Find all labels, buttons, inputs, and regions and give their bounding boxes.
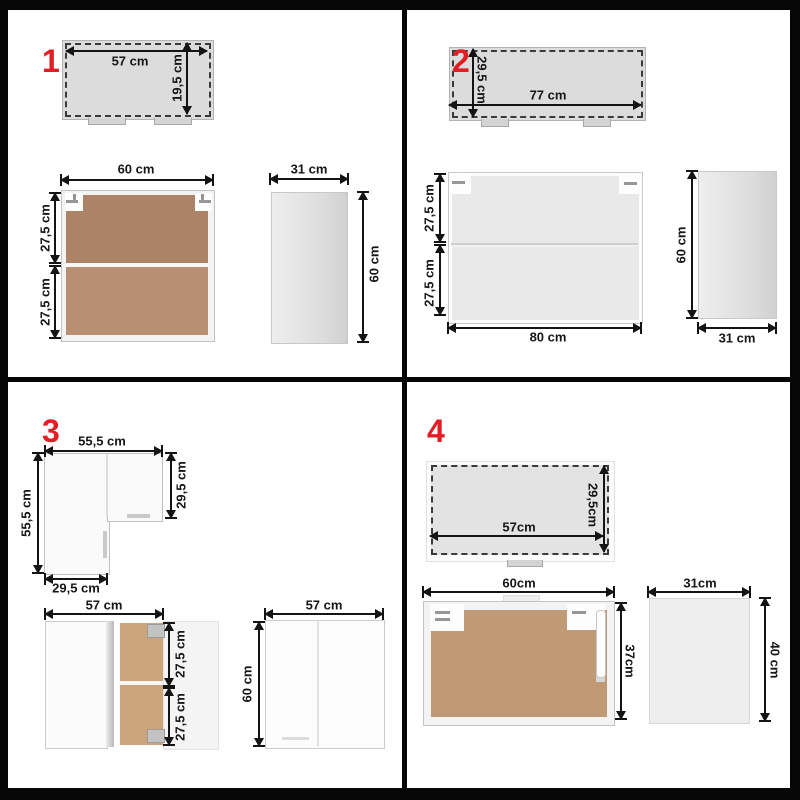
door-seam <box>317 621 319 746</box>
end-tick <box>163 744 175 746</box>
corner-cabinet-right-arm <box>107 453 163 522</box>
end-tick <box>49 265 61 267</box>
door-handle <box>282 737 309 740</box>
end-tick <box>422 586 424 598</box>
dim-line-side-width <box>648 591 750 593</box>
end-tick <box>434 314 446 316</box>
panel-2-number: 2 <box>452 45 470 77</box>
dim-line-width <box>430 535 603 537</box>
end-tick <box>640 322 642 334</box>
hinge-hardware <box>73 194 76 202</box>
end-tick <box>253 621 265 623</box>
dim-line-upper-height <box>54 193 56 263</box>
cabinet-foot <box>507 560 543 567</box>
dim-label-open-upper-height: 27,5 cm <box>174 630 187 678</box>
end-tick <box>615 602 627 604</box>
dim-line-lower-height <box>54 266 56 338</box>
open-door-panel <box>45 621 108 749</box>
end-tick <box>269 173 271 185</box>
glass-shelf-highlight <box>451 245 638 247</box>
end-tick <box>434 173 446 175</box>
dim-label-closed-width: 57 cm <box>306 599 343 612</box>
end-tick <box>60 174 62 186</box>
end-tick <box>613 586 615 598</box>
end-tick <box>49 192 61 194</box>
dim-line-lower-height <box>439 245 441 315</box>
end-tick <box>165 452 177 454</box>
panel-4-side-view-drawing <box>649 598 750 724</box>
cabinet-interior-lower <box>66 267 208 335</box>
hinge-icon <box>147 729 165 743</box>
dim-label-front-width: 60 cm <box>118 163 155 176</box>
end-tick <box>434 244 446 246</box>
end-tick <box>686 317 698 319</box>
door-seam <box>106 454 108 518</box>
dim-line-depth <box>603 466 605 552</box>
lift-piston-icon <box>596 610 606 678</box>
dim-label-corner-bottom-width: 29,5 cm <box>52 582 100 595</box>
hinge-hardware <box>435 618 450 621</box>
dim-label-side-width: 31 cm <box>719 332 756 345</box>
open-door-edge <box>106 621 114 747</box>
door-handle <box>127 514 150 518</box>
dim-line-open-lower-height <box>168 688 170 745</box>
cabinet-foot <box>154 118 192 125</box>
end-tick <box>686 170 698 172</box>
panel-3-number: 3 <box>42 415 60 447</box>
end-tick <box>32 572 44 574</box>
door-handle <box>103 531 107 558</box>
cabinet-shelf <box>66 263 208 267</box>
hinge-hardware <box>572 611 586 614</box>
end-tick <box>382 608 384 620</box>
end-tick <box>264 608 266 620</box>
end-tick <box>357 341 369 343</box>
panel-1-number: 1 <box>42 45 60 77</box>
dim-label-front-height: 37cm <box>624 644 637 677</box>
end-tick <box>749 586 751 598</box>
dim-label-front-width: 60cm <box>502 577 535 590</box>
end-tick <box>161 445 163 457</box>
end-tick <box>615 718 627 720</box>
dim-label-closed-height: 60 cm <box>241 666 254 703</box>
panel-4-top-view-drawing <box>431 465 609 555</box>
dim-label-open-width: 57 cm <box>86 599 123 612</box>
frame-bottom <box>0 788 800 800</box>
end-tick <box>163 687 175 689</box>
dim-line-open-width <box>45 613 163 615</box>
dim-line-side-height <box>691 171 693 318</box>
hinge-hardware <box>435 611 450 614</box>
end-tick <box>357 191 369 193</box>
dim-label-width: 57cm <box>502 521 535 534</box>
dim-label-upper-height: 27,5 cm <box>39 204 52 252</box>
panel-4-number: 4 <box>427 415 445 447</box>
end-tick <box>212 174 214 186</box>
cabinet-foot <box>88 118 126 125</box>
dim-line-side-height <box>764 598 766 721</box>
dim-line-corner-top-width <box>45 450 162 452</box>
quadrant-divider-horizontal <box>0 377 800 382</box>
dim-label-width: 57 cm <box>112 55 149 68</box>
end-tick <box>697 322 699 334</box>
frame-right <box>790 0 800 800</box>
dim-label-side-height: 60 cm <box>675 227 688 264</box>
dim-line-front-width <box>61 179 213 181</box>
frame-left <box>0 0 8 800</box>
dim-label-depth: 19,5 cm <box>171 54 184 102</box>
dim-label-open-lower-height: 27,5 cm <box>174 693 187 741</box>
dim-line-closed-width <box>265 613 383 615</box>
end-tick <box>44 573 46 585</box>
dim-label-upper-height: 27,5 cm <box>423 184 436 232</box>
cabinet-foot <box>481 119 509 127</box>
dim-line-width <box>449 104 641 106</box>
end-tick <box>32 452 44 454</box>
end-tick <box>49 337 61 339</box>
dim-line-closed-height <box>258 622 260 746</box>
cabinet-interior-upper <box>66 195 208 263</box>
closed-cabinet-drawing <box>265 620 385 749</box>
dim-line-corner-left-depth <box>37 453 39 573</box>
dim-label-corner-left-depth: 55,5 cm <box>20 489 33 537</box>
frame-top <box>0 0 800 10</box>
end-tick <box>447 322 449 334</box>
end-tick <box>775 322 777 334</box>
end-tick <box>647 586 649 598</box>
cabinet-foot <box>583 119 611 127</box>
hinge-hardware <box>66 200 78 203</box>
dim-label-front-width: 80 cm <box>530 331 567 344</box>
dim-label-corner-right-depth: 29,5 cm <box>175 461 188 509</box>
dim-line-depth <box>186 43 188 114</box>
dim-label-side-width: 31 cm <box>291 163 328 176</box>
hinge-hardware <box>201 194 204 202</box>
end-tick <box>49 262 61 264</box>
dim-label-lower-height: 27,5 cm <box>423 259 436 307</box>
dim-label-side-width: 31cm <box>683 577 716 590</box>
end-tick <box>44 608 46 620</box>
panel-2-front-view-drawing <box>448 172 643 324</box>
corner-cabinet-left-arm <box>44 453 110 575</box>
end-tick <box>759 720 771 722</box>
dim-label-side-height: 60 cm <box>368 246 381 283</box>
dim-label-width: 77 cm <box>530 89 567 102</box>
hinge-hardware <box>452 181 465 184</box>
dim-line-side-width <box>698 327 776 329</box>
end-tick <box>253 745 265 747</box>
dim-label-depth: 29,5 cm <box>476 56 489 104</box>
dim-label-corner-top-width: 55,5 cm <box>78 435 126 448</box>
cabinet-dimension-sheet: 1 57 cm 19,5 cm 60 cm 27,5 cm 27,5 cm 31… <box>0 0 800 800</box>
dim-line-upper-height <box>439 174 441 242</box>
dim-label-depth: 29,5cm <box>587 483 600 527</box>
dim-line-open-upper-height <box>168 623 170 686</box>
end-tick <box>347 173 349 185</box>
end-tick <box>434 241 446 243</box>
hinge-icon <box>147 624 165 638</box>
dim-line-side-width <box>270 178 348 180</box>
end-tick <box>162 608 164 620</box>
end-tick <box>759 597 771 599</box>
dim-line-side-height <box>362 192 364 342</box>
end-tick <box>106 573 108 585</box>
quadrant-divider-vertical <box>402 0 407 800</box>
dim-line-front-width <box>423 591 614 593</box>
cabinet-shelf <box>120 681 163 685</box>
dim-label-lower-height: 27,5 cm <box>39 278 52 326</box>
panel-2-side-view-drawing <box>698 171 777 319</box>
hinge-hardware <box>624 182 637 185</box>
end-tick <box>163 622 175 624</box>
dim-label-side-height: 40 cm <box>769 642 782 679</box>
end-tick <box>165 517 177 519</box>
dim-line-corner-right-depth <box>170 453 172 518</box>
panel-1-side-view-drawing <box>271 192 348 344</box>
